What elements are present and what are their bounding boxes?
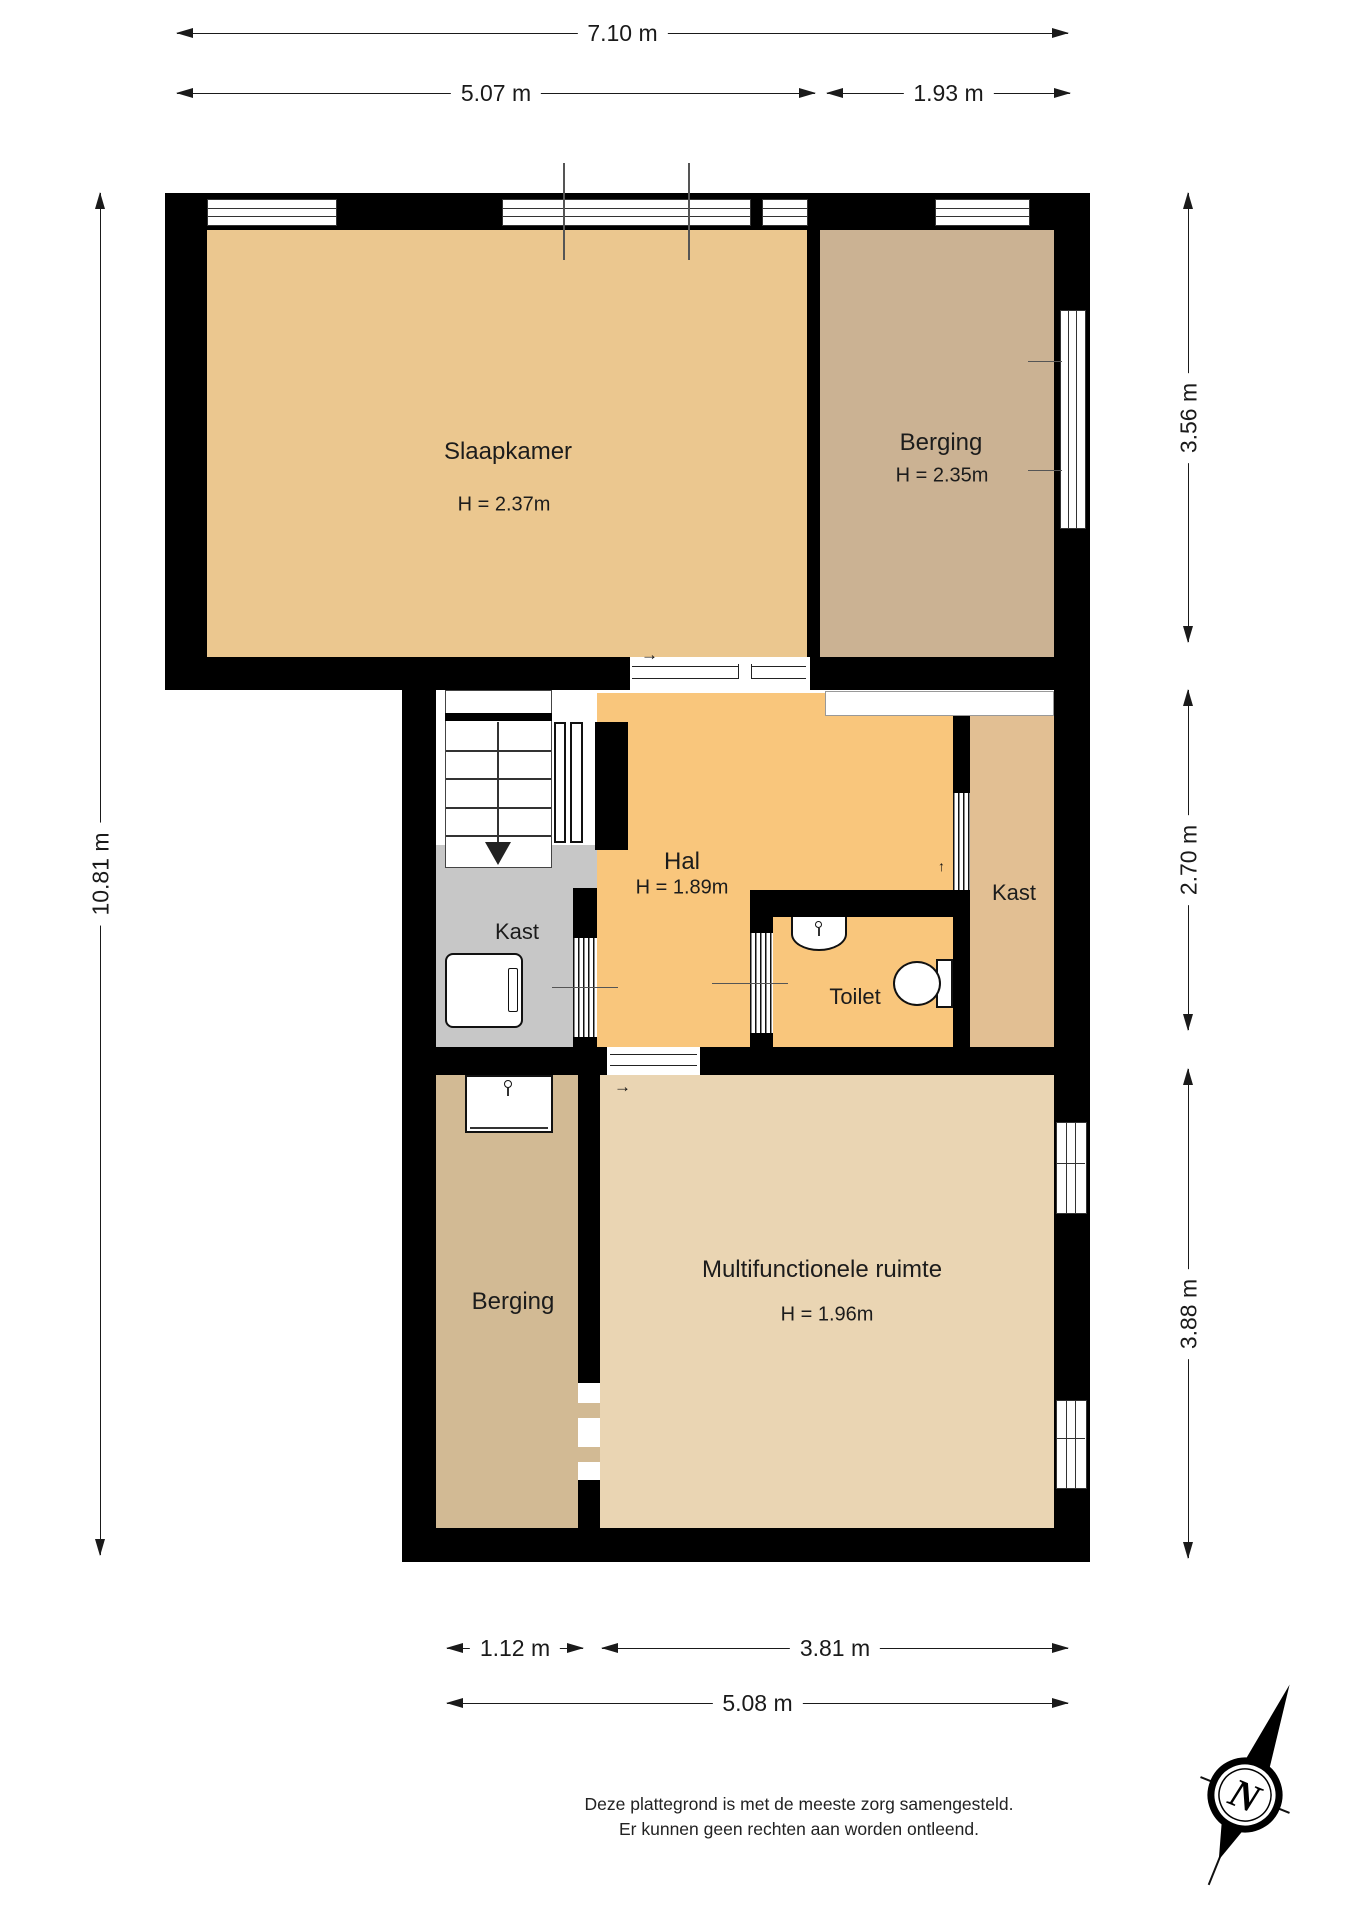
label-berging-bottom: Berging — [472, 1288, 555, 1316]
door-toilet-tick — [712, 983, 788, 984]
arrowhead-right-icon — [1052, 28, 1069, 38]
window-slaapkamer-north-1 — [207, 199, 337, 226]
label-slaapkamer: Slaapkamer — [444, 438, 572, 466]
sink-tap-icon — [815, 921, 822, 928]
label-hal-height: H = 1.89m — [636, 877, 729, 900]
stairs-tread-4 — [446, 835, 551, 837]
wall-toilet-north — [750, 890, 970, 917]
arrowhead-left-icon — [446, 1698, 463, 1708]
arrowhead-up-icon — [1183, 192, 1193, 209]
window-berging-east — [1060, 310, 1086, 529]
arrowhead-left-icon — [176, 28, 193, 38]
dim-bottom-total-label: 5.08 m — [712, 1690, 802, 1717]
dim-bottom-right-label: 3.81 m — [790, 1635, 880, 1662]
wall-slaapkamer-berging — [807, 230, 820, 660]
dim-top-left: 5.07 m — [177, 93, 815, 94]
stairs-down-arrow — [485, 842, 511, 865]
door-kast-right — [953, 793, 970, 890]
label-toilet: Toilet — [829, 984, 880, 1010]
dim-top-left-label: 5.07 m — [451, 80, 541, 107]
wall-slaapkamer-south — [165, 657, 630, 690]
wall-middle-south-left — [436, 1047, 607, 1075]
window-multi-east-1-divider — [1056, 1163, 1085, 1164]
extension-tick-1 — [563, 163, 565, 260]
arrowhead-right-icon — [1052, 1643, 1069, 1653]
appliance-tap-icon — [504, 1080, 512, 1088]
wall-stairs-east — [595, 722, 628, 850]
door-berging-bottom — [578, 1383, 600, 1480]
arrowhead-right-icon — [1054, 88, 1071, 98]
stairs-rail-1 — [554, 722, 566, 843]
window-multi-east-1 — [1056, 1122, 1087, 1214]
label-hal: Hal — [664, 848, 700, 876]
dim-right-middle: 2.70 m — [1188, 690, 1189, 1030]
label-kast-left: Kast — [495, 919, 539, 945]
wall-berging-multi-upper — [578, 1075, 600, 1383]
door-kast-right-swing-arrow: ↑ — [938, 858, 945, 875]
arrowhead-right-icon — [799, 88, 816, 98]
door-berging-bottom-bar-2 — [578, 1447, 600, 1462]
wall-top-west — [165, 193, 207, 690]
wall-kastleft-east-upper — [573, 888, 597, 938]
floorplan-page: → ↑ → Slaapkamer H = 2.37m Berging H = 2… — [0, 0, 1358, 1920]
label-multifunctionele-height: H = 1.96m — [781, 1304, 874, 1327]
arrowhead-down-icon — [1183, 626, 1193, 643]
wall-toilet-west-upper — [750, 890, 773, 933]
wall-outer-west-lower — [402, 657, 436, 1562]
dim-top-total: 7.10 m — [177, 33, 1068, 34]
dim-top-right: 1.93 m — [827, 93, 1070, 94]
dim-top-total-label: 7.10 m — [577, 20, 667, 47]
arrowhead-down-icon — [1183, 1542, 1193, 1559]
dim-bottom-right: 3.81 m — [602, 1648, 1068, 1649]
arrowhead-left-icon — [826, 88, 843, 98]
arrowhead-up-icon — [1183, 689, 1193, 706]
wall-toilet-west-lower — [750, 1033, 773, 1047]
dim-left-total-label: 10.81 m — [88, 822, 115, 925]
dim-right-bottom-label: 3.88 m — [1176, 1268, 1203, 1358]
arrowhead-up-icon — [95, 192, 105, 209]
dim-right-bottom: 3.88 m — [1188, 1069, 1189, 1558]
arrowhead-down-icon — [95, 1539, 105, 1556]
wall-berging-south — [810, 657, 1090, 690]
wall-south — [402, 1528, 1090, 1562]
door-multi-rail — [610, 1054, 697, 1066]
label-kast-right: Kast — [992, 880, 1036, 906]
wall-berging-multi-lower — [578, 1480, 600, 1528]
disclaimer: Deze plattegrond is met de meeste zorg s… — [399, 1792, 1199, 1842]
wall-kastright-west-upper — [953, 716, 970, 793]
arrowhead-right-icon — [567, 1643, 584, 1653]
door-berging-bottom-bar-1 — [578, 1403, 600, 1418]
wall-kastright-west-lower — [953, 890, 970, 1047]
arrowhead-left-icon — [601, 1643, 618, 1653]
stairs-tread-3 — [446, 807, 551, 809]
stairs-rail-2 — [570, 722, 583, 843]
north-compass-icon: N — [1175, 1660, 1315, 1900]
label-slaapkamer-height: H = 2.37m — [458, 494, 551, 517]
dim-left-total: 10.81 m — [100, 193, 101, 1555]
disclaimer-line-2: Er kunnen geen rechten aan worden ontlee… — [399, 1817, 1199, 1842]
arrowhead-right-icon — [1052, 1698, 1069, 1708]
disclaimer-line-1: Deze plattegrond is met de meeste zorg s… — [399, 1792, 1199, 1817]
stairs-tread-2 — [446, 778, 551, 780]
door-slaapkamer-rail-stop — [738, 664, 752, 679]
door-kast-left-tick — [552, 987, 618, 988]
window-multi-east-2 — [1056, 1400, 1087, 1489]
sink-tap-stem — [818, 928, 820, 936]
window-berging-east-sill-tick-1 — [1028, 361, 1062, 362]
door-multi-slide-arrow: → — [614, 1078, 631, 1095]
arrowhead-left-icon — [176, 88, 193, 98]
dim-bottom-left: 1.12 m — [447, 1648, 583, 1649]
appliance-berging-bottom-lip — [470, 1127, 548, 1129]
dim-bottom-total: 5.08 m — [447, 1703, 1068, 1704]
washer-door-bar — [508, 968, 518, 1012]
dim-bottom-left-label: 1.12 m — [470, 1635, 560, 1662]
room-multifunctionele — [600, 1075, 1054, 1528]
door-slaapkamer-rail — [632, 666, 806, 679]
stairs-center-line — [497, 722, 499, 843]
dim-right-top: 3.56 m — [1188, 193, 1189, 642]
dim-right-middle-label: 2.70 m — [1176, 815, 1203, 905]
window-berging-north — [935, 199, 1030, 226]
arrowhead-up-icon — [1183, 1068, 1193, 1085]
window-berging-east-sill-tick-2 — [1028, 470, 1062, 471]
arrowhead-down-icon — [1183, 1014, 1193, 1031]
window-multi-east-2-divider — [1056, 1438, 1085, 1439]
label-berging-top: Berging — [900, 429, 983, 457]
door-slaapkamer-slide-arrow: → — [641, 646, 658, 663]
wc-bowl — [893, 961, 941, 1006]
window-slaapkamer-north-3 — [762, 199, 808, 226]
window-slaapkamer-north-2 — [502, 199, 751, 226]
label-berging-top-height: H = 2.35m — [896, 465, 989, 488]
stairs-tread-1 — [446, 750, 551, 752]
berging-niche — [825, 691, 1054, 716]
label-multifunctionele: Multifunctionele ruimte — [702, 1256, 942, 1284]
dim-top-right-label: 1.93 m — [903, 80, 993, 107]
extension-tick-2 — [688, 163, 690, 260]
arrowhead-left-icon — [446, 1643, 463, 1653]
dim-right-top-label: 3.56 m — [1176, 372, 1203, 462]
appliance-tap-stem — [507, 1088, 509, 1096]
stairs-header-bar — [445, 713, 552, 721]
wall-middle-south-right — [700, 1047, 1090, 1075]
wall-kastleft-east-lower — [573, 1037, 597, 1047]
